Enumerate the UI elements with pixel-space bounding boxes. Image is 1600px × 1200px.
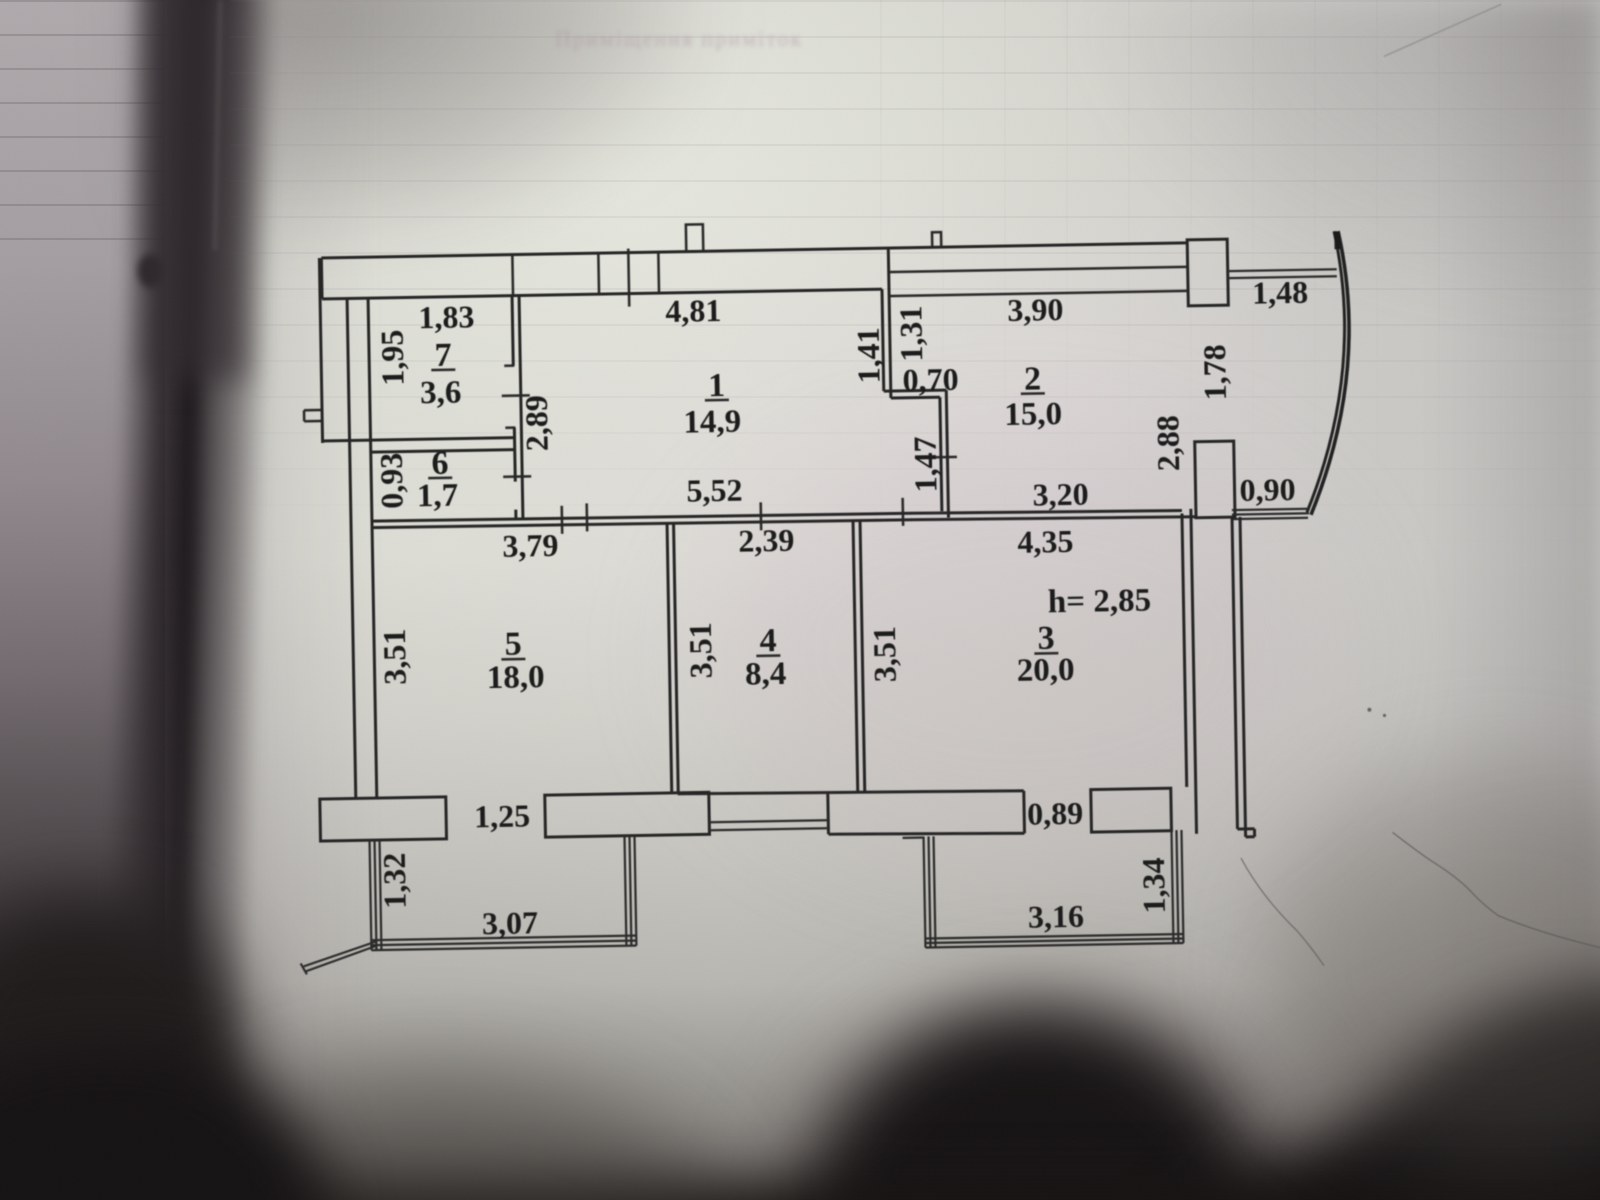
svg-text:4: 4 <box>759 622 777 659</box>
svg-text:1,95: 1,95 <box>374 329 411 386</box>
svg-text:h= 2,85: h= 2,85 <box>1048 583 1152 621</box>
svg-text:7: 7 <box>434 337 452 374</box>
svg-text:5,52: 5,52 <box>686 472 743 509</box>
svg-text:3,79: 3,79 <box>502 527 559 564</box>
svg-text:3,6: 3,6 <box>420 375 462 412</box>
svg-text:8,4: 8,4 <box>745 656 787 693</box>
svg-text:1,83: 1,83 <box>418 298 475 335</box>
svg-text:1: 1 <box>708 367 726 404</box>
svg-text:2,88: 2,88 <box>1149 415 1186 472</box>
svg-text:20,0: 20,0 <box>1016 652 1074 689</box>
svg-text:15,0: 15,0 <box>1004 396 1062 433</box>
svg-text:0,90: 0,90 <box>1239 471 1296 508</box>
svg-text:1,34: 1,34 <box>1135 857 1172 914</box>
svg-text:1,32: 1,32 <box>376 852 413 909</box>
svg-text:0,70: 0,70 <box>902 361 959 398</box>
svg-text:2,89: 2,89 <box>518 395 555 452</box>
svg-text:0,89: 0,89 <box>1027 795 1084 832</box>
svg-text:3,51: 3,51 <box>682 622 719 679</box>
svg-text:1,31: 1,31 <box>892 305 929 362</box>
svg-text:3,16: 3,16 <box>1028 898 1085 935</box>
svg-text:3,07: 3,07 <box>482 904 539 941</box>
svg-text:1,47: 1,47 <box>907 436 944 493</box>
svg-text:4,35: 4,35 <box>1017 523 1074 560</box>
svg-text:18,0: 18,0 <box>487 659 545 696</box>
svg-text:2,39: 2,39 <box>738 522 795 559</box>
svg-text:3,51: 3,51 <box>376 628 413 685</box>
svg-text:3,90: 3,90 <box>1007 291 1064 328</box>
svg-text:2: 2 <box>1024 360 1042 397</box>
svg-text:1,25: 1,25 <box>474 797 531 834</box>
svg-text:1,48: 1,48 <box>1252 274 1309 311</box>
svg-text:1,41: 1,41 <box>850 327 887 384</box>
svg-text:4,81: 4,81 <box>665 292 722 329</box>
svg-text:3,20: 3,20 <box>1032 476 1089 513</box>
svg-text:0,93: 0,93 <box>373 452 410 509</box>
svg-text:14,9: 14,9 <box>683 404 741 441</box>
svg-text:6: 6 <box>431 445 449 482</box>
svg-text:5: 5 <box>504 626 522 663</box>
svg-text:1,78: 1,78 <box>1196 344 1233 401</box>
svg-text:3,51: 3,51 <box>866 626 903 683</box>
svg-text:1,7: 1,7 <box>417 478 459 515</box>
